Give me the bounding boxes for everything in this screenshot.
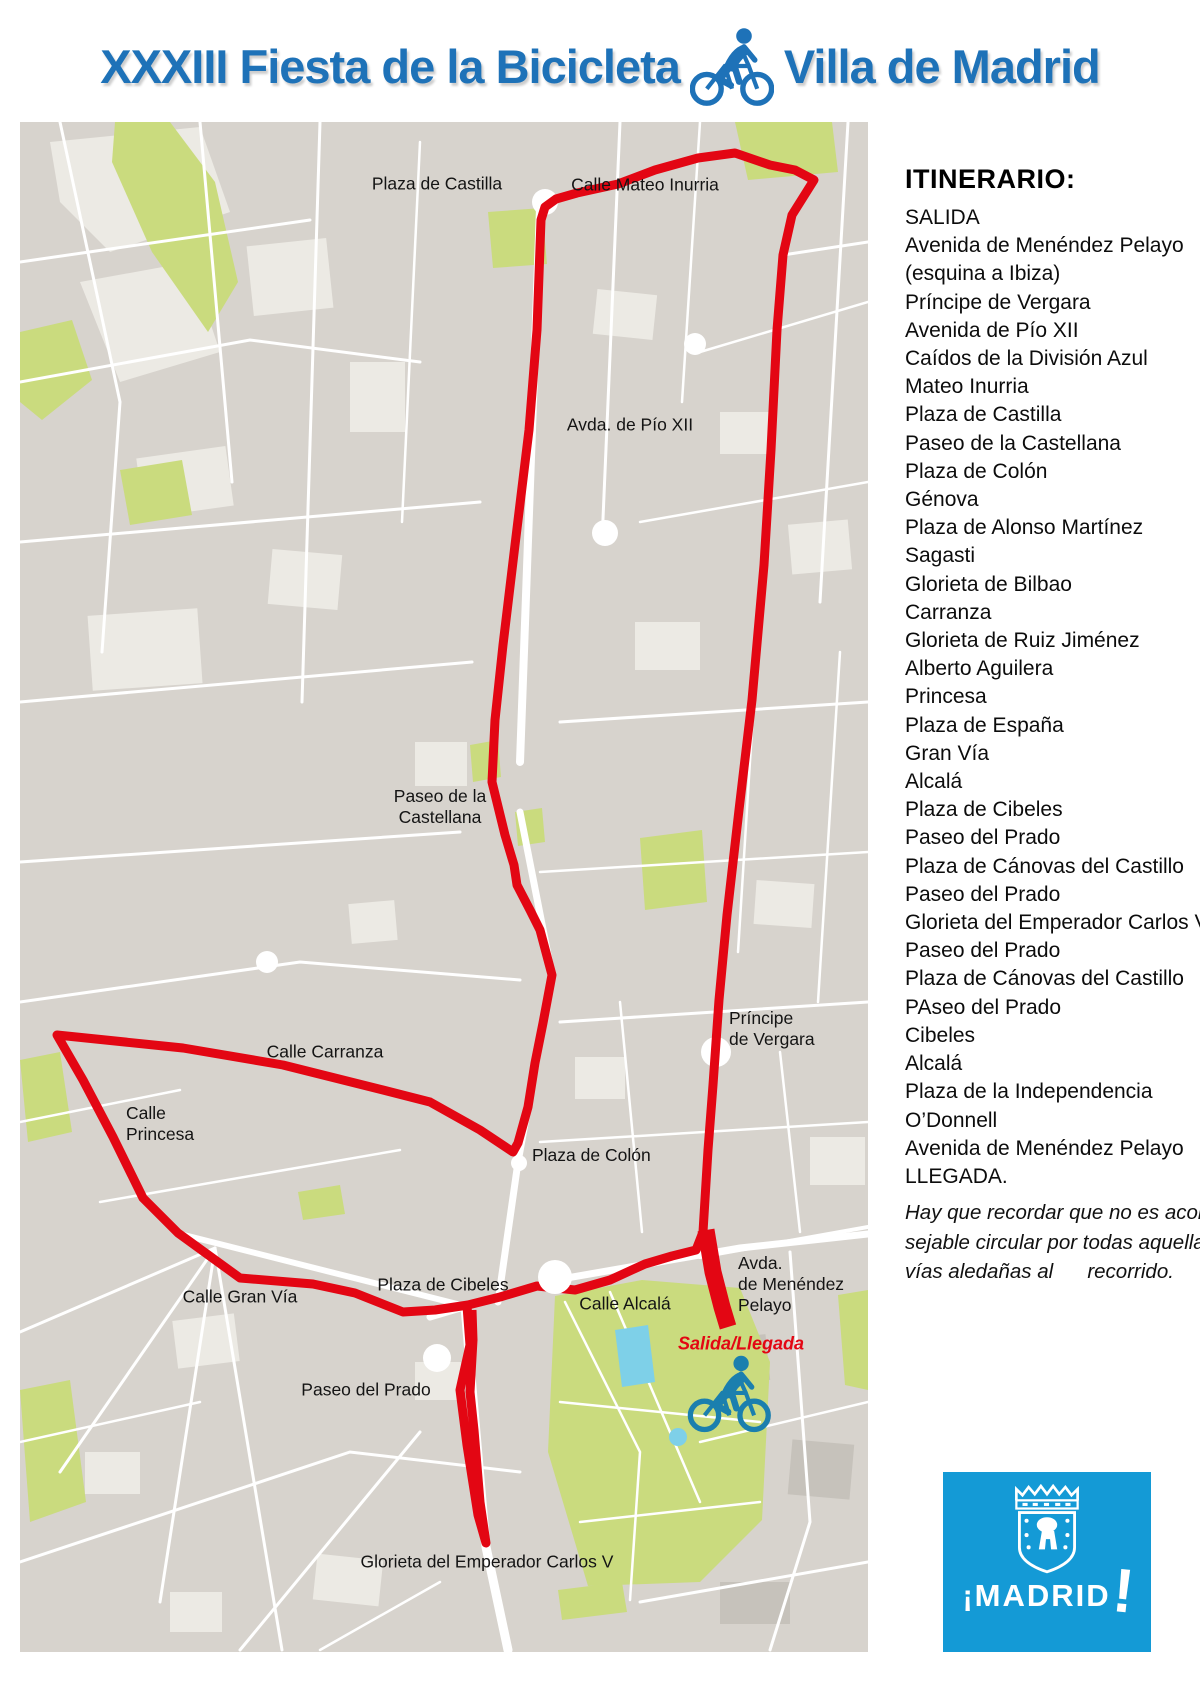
- itinerary-item: Gran Vía: [905, 740, 1197, 768]
- itinerary-item: Plaza de Colón: [905, 458, 1197, 486]
- itinerary-item: Paseo del Prado: [905, 881, 1197, 909]
- itinerary-panel: ITINERARIO: SALIDAAvenida de Menéndez Pe…: [905, 164, 1197, 1191]
- itinerary-item: Paseo de la Castellana: [905, 430, 1197, 458]
- itinerary-item: Glorieta del Emperador Carlos V: [905, 909, 1197, 937]
- itinerary-item: Carranza: [905, 599, 1197, 627]
- itinerary-item: (esquina a Ibiza): [905, 260, 1197, 288]
- itinerary-item: Plaza de Alonso Martínez: [905, 514, 1197, 542]
- route-map: [20, 122, 868, 1652]
- itinerary-heading: ITINERARIO:: [905, 164, 1197, 195]
- madrid-crest-icon: [999, 1484, 1095, 1580]
- title-right: Villa de Madrid: [784, 39, 1100, 94]
- itinerary-item: Mateo Inurria: [905, 373, 1197, 401]
- itinerary-item: Sagasti: [905, 542, 1197, 570]
- itinerary-item: Alberto Aguilera: [905, 655, 1197, 683]
- itinerary-item: Príncipe de Vergara: [905, 289, 1197, 317]
- map-graphic: [20, 122, 868, 1652]
- itinerary-item: Paseo del Prado: [905, 937, 1197, 965]
- cyclist-logo-icon: [690, 26, 774, 106]
- itinerary-item: Plaza de la Independencia: [905, 1078, 1197, 1106]
- itinerary-item: Paseo del Prado: [905, 824, 1197, 852]
- itinerary-item: Avenida de Menéndez Pelayo: [905, 1135, 1197, 1163]
- itinerary-item: Avenida de Menéndez Pelayo: [905, 232, 1197, 260]
- logo-word: MADRID: [975, 1578, 1111, 1614]
- itinerary-item: Plaza de España: [905, 712, 1197, 740]
- itinerary-item: PAseo del Prado: [905, 994, 1197, 1022]
- logo-open-exclamation: ¡: [963, 1580, 973, 1614]
- itinerary-item: Plaza de Cánovas del Castillo: [905, 853, 1197, 881]
- itinerary-item: Génova: [905, 486, 1197, 514]
- madrid-logo-text: ¡MADRID!: [963, 1578, 1132, 1614]
- madrid-city-logo: ¡MADRID!: [943, 1472, 1151, 1652]
- itinerary-item: LLEGADA.: [905, 1163, 1197, 1191]
- itinerary-item: Alcalá: [905, 768, 1197, 796]
- itinerary-item: Princesa: [905, 683, 1197, 711]
- itinerary-item: O’Donnell: [905, 1107, 1197, 1135]
- itinerary-item: Alcalá: [905, 1050, 1197, 1078]
- logo-close-exclamation: !: [1113, 1591, 1134, 1593]
- itinerary-item: Avenida de Pío XII: [905, 317, 1197, 345]
- itinerary-list: SALIDAAvenida de Menéndez Pelayo(esquina…: [905, 204, 1197, 1191]
- itinerary-item: Glorieta de Bilbao: [905, 571, 1197, 599]
- itinerary-item: Plaza de Castilla: [905, 401, 1197, 429]
- cibeles-roundabout: [538, 1260, 572, 1294]
- itinerary-item: Plaza de Cánovas del Castillo: [905, 965, 1197, 993]
- title-left: XXXIII Fiesta de la Bicicleta: [100, 39, 680, 94]
- itinerary-item: Plaza de Cibeles: [905, 796, 1197, 824]
- itinerary-item: Cibeles: [905, 1022, 1197, 1050]
- itinerary-item: Caídos de la División Azul: [905, 345, 1197, 373]
- itinerary-item: Glorieta de Ruiz Jiménez: [905, 627, 1197, 655]
- page-title: XXXIII Fiesta de la Bicicleta Villa de M…: [0, 14, 1200, 118]
- route-advisory-note: Hay que recordar que no es acon- sejable…: [905, 1198, 1195, 1287]
- itinerary-item: SALIDA: [905, 204, 1197, 232]
